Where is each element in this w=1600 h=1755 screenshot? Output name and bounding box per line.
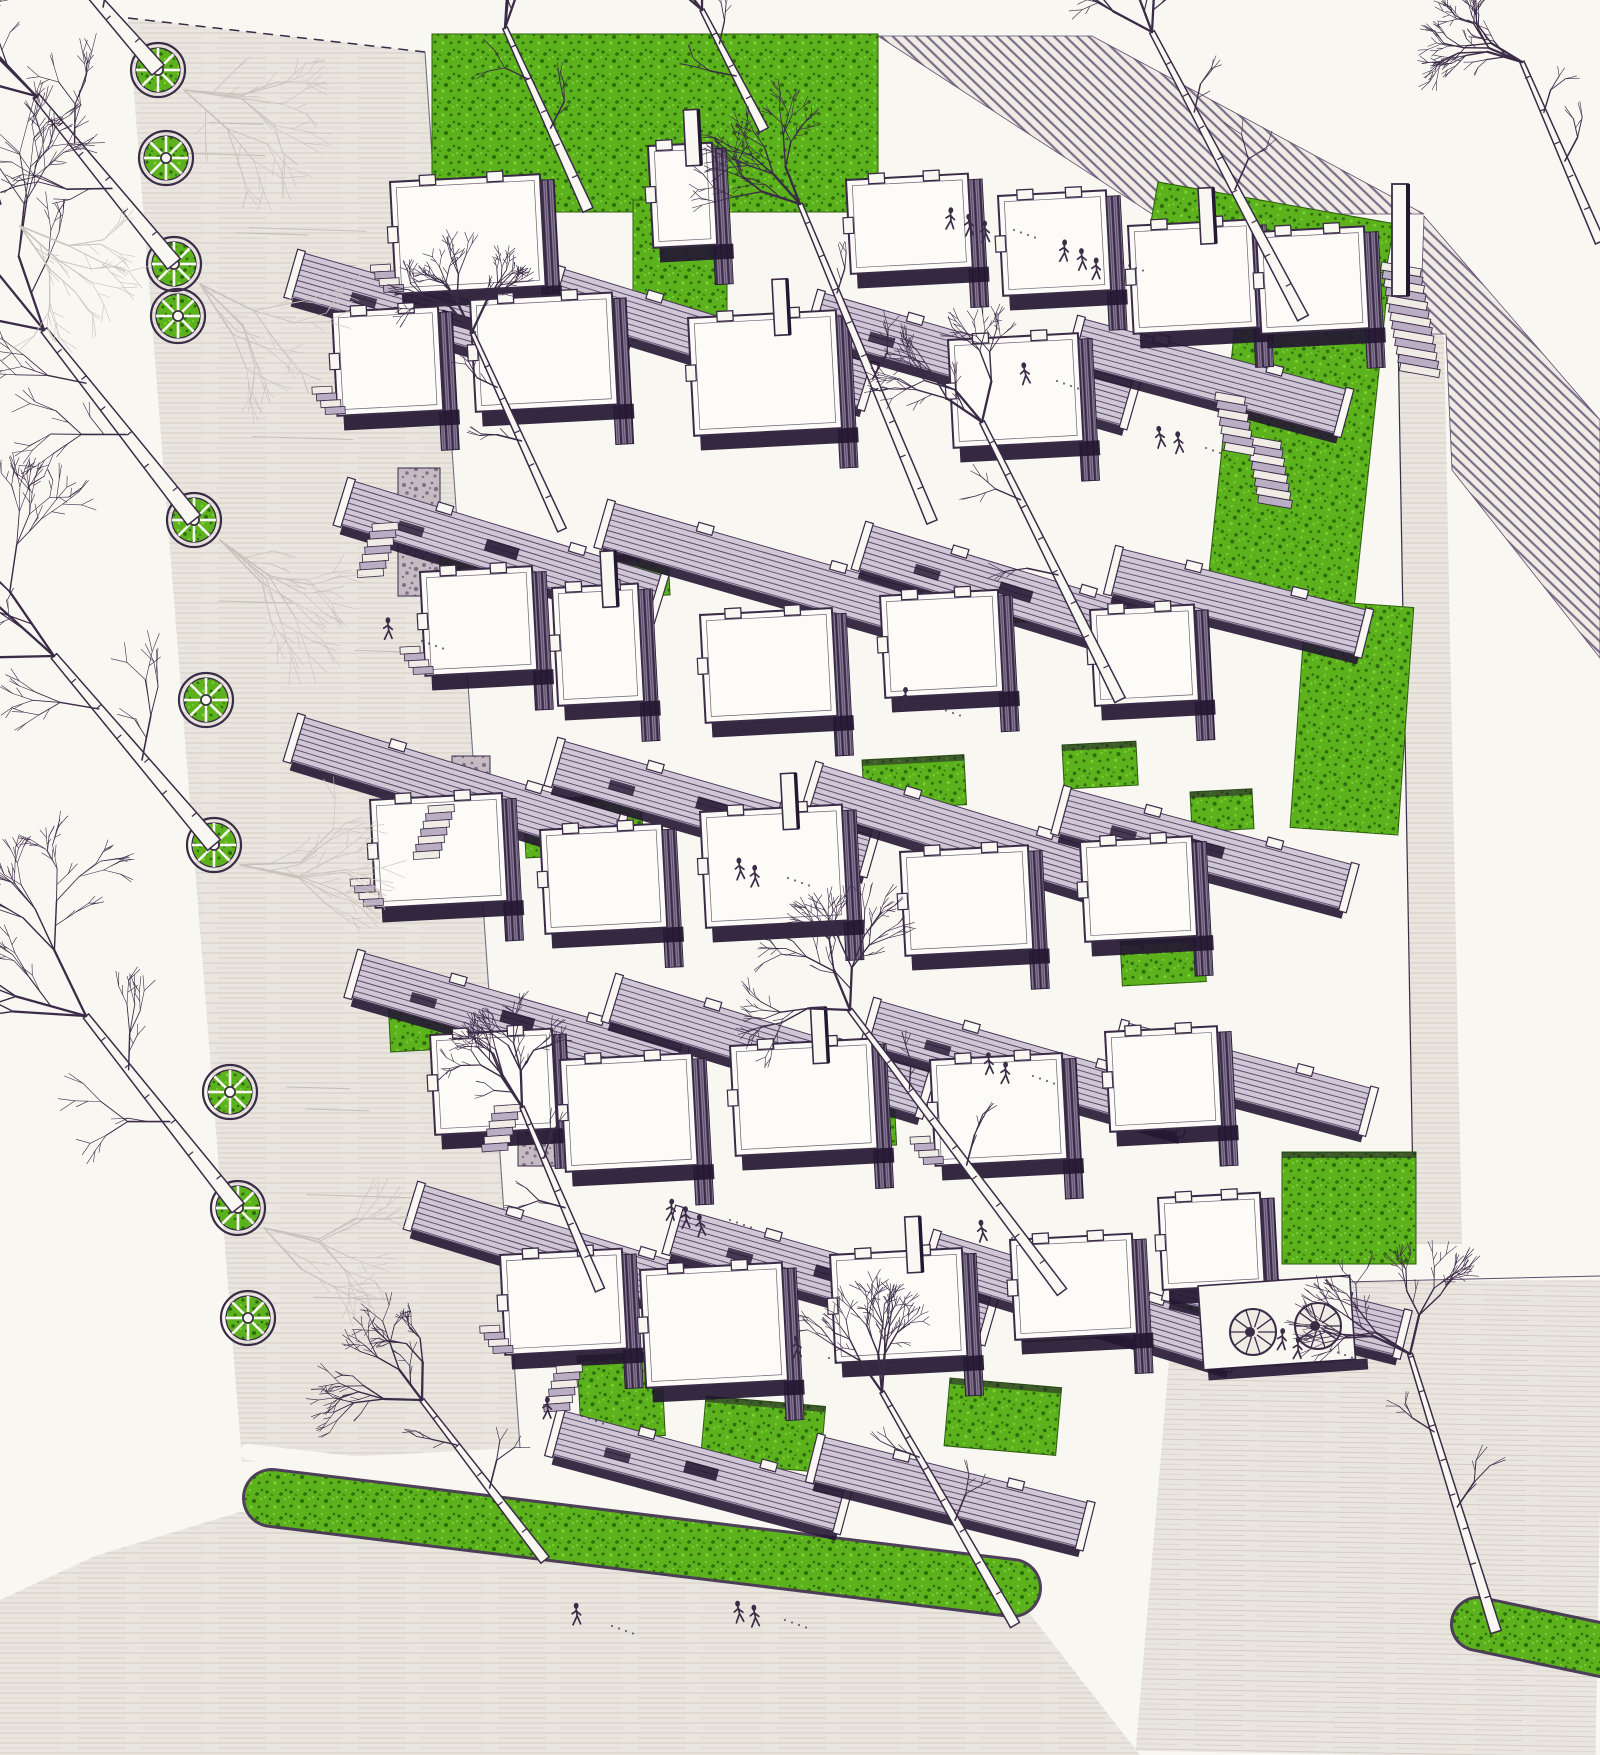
building-module (535, 818, 686, 974)
lawn-patch (1282, 1152, 1416, 1264)
building-module (1100, 1020, 1240, 1172)
wall-fin (772, 279, 790, 336)
building-module (555, 1047, 716, 1212)
building-module (875, 584, 1022, 738)
building-module (695, 602, 856, 763)
building-module (943, 327, 1102, 488)
site-rendering-canvas (0, 0, 1600, 1755)
wall-fin (905, 1216, 923, 1273)
lawn-patch (944, 1378, 1062, 1456)
street-planter (203, 1065, 257, 1119)
street-tree (0, 0, 149, 353)
person-figure (1154, 425, 1165, 448)
wall-fin (1392, 184, 1408, 296)
courtyard-tree (1418, 0, 1600, 244)
street-planter (139, 131, 193, 185)
wall-fin (810, 1007, 828, 1064)
circular-planter (1230, 1309, 1276, 1355)
street-planter (221, 1291, 275, 1345)
building-module (841, 168, 991, 314)
architectural-rendering (0, 0, 1600, 1755)
wall-fin (1198, 187, 1216, 244)
lawn-patch (1062, 741, 1138, 789)
wall-fin (683, 109, 701, 166)
street-planter (151, 289, 205, 343)
person-figure (1174, 431, 1184, 453)
figure-group (1154, 425, 1228, 456)
wall-fin (600, 551, 618, 608)
street-planter (179, 673, 233, 727)
wall-fin (780, 773, 798, 830)
building-module (895, 839, 1052, 996)
person-figure (977, 1219, 987, 1242)
